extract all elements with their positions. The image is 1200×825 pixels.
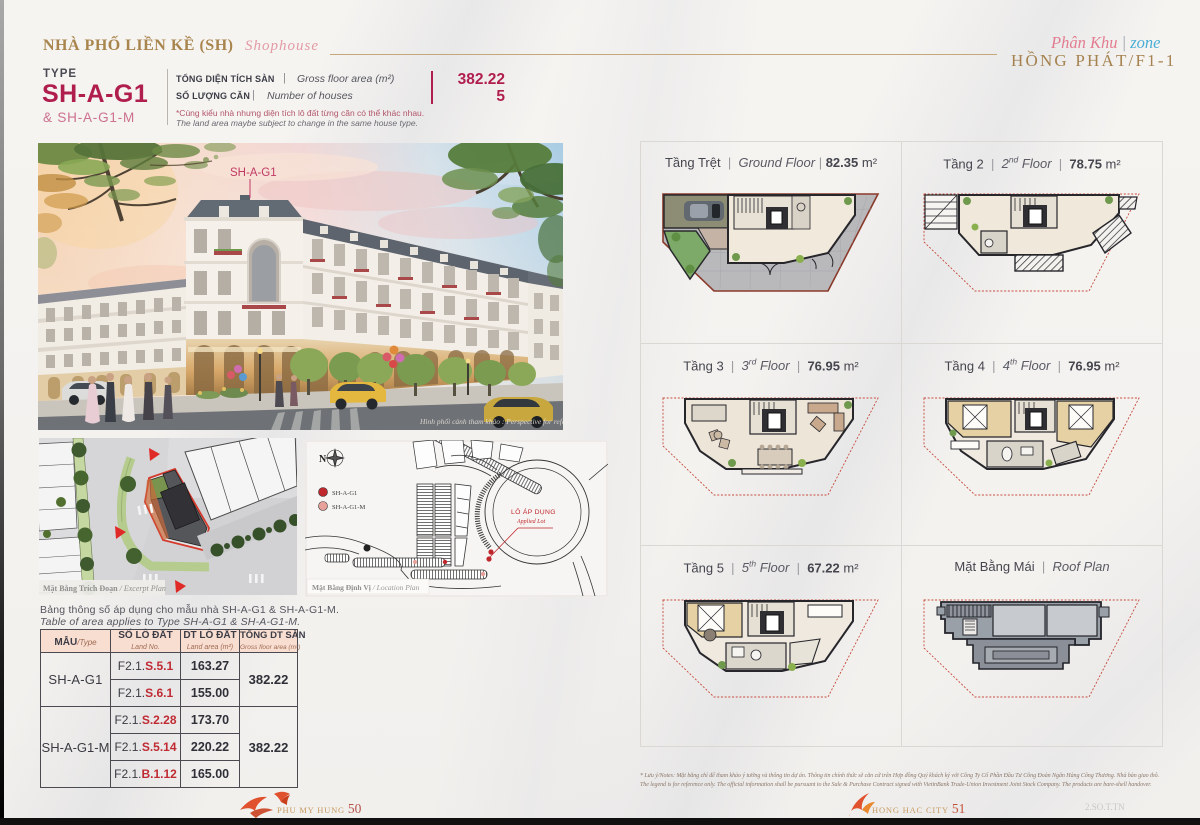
svg-text:Mặt Bằng Định Vị / Location Pl: Mặt Bằng Định Vị / Location Plan <box>312 583 420 592</box>
svg-text:SH-A-G1: SH-A-G1 <box>332 490 357 497</box>
svg-text:SH-A-G1-M: SH-A-G1-M <box>332 504 365 511</box>
svg-text:LÔ ÁP DỤNG: LÔ ÁP DỤNG <box>511 507 556 516</box>
svg-text:Applied Lot: Applied Lot <box>516 519 545 525</box>
svg-text:N: N <box>319 454 327 465</box>
svg-text:Hình phối cảnh tham khảo : Per: Hình phối cảnh tham khảo : Perspective f… <box>419 417 563 426</box>
svg-text:SH-A-G1: SH-A-G1 <box>230 167 277 179</box>
svg-text:Mặt Bằng Trích Đoạn / Excerpt: Mặt Bằng Trích Đoạn / Excerpt Plan <box>43 584 166 593</box>
